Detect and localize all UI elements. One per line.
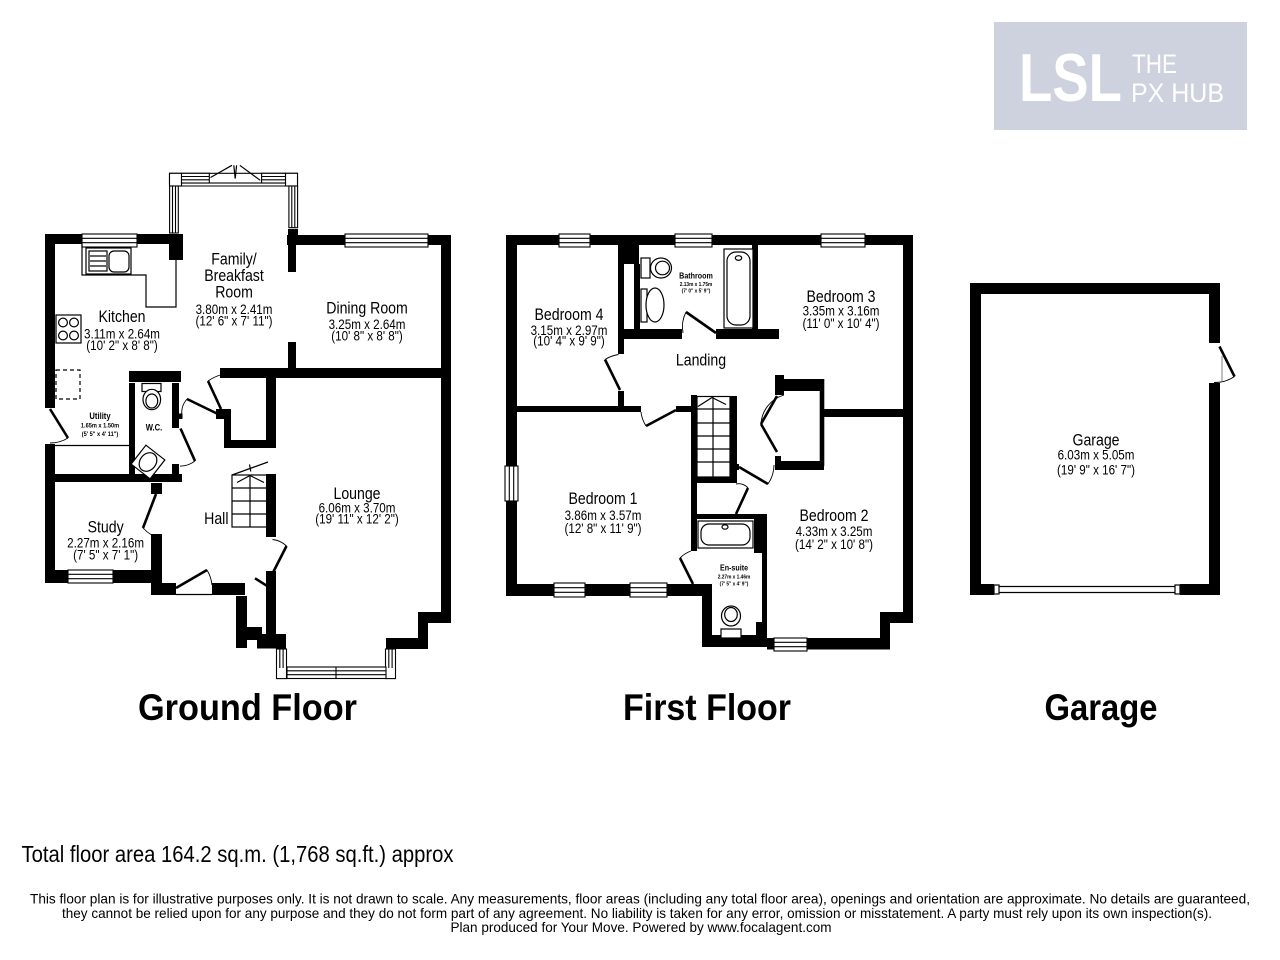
svg-text:Ground Floor: Ground Floor: [138, 687, 357, 728]
svg-text:Bathroom: Bathroom: [679, 271, 713, 281]
svg-text:(12' 8" x 11' 9"): (12' 8" x 11' 9"): [564, 520, 641, 536]
svg-text:(14' 2" x 10' 8"): (14' 2" x 10' 8"): [795, 536, 873, 552]
svg-text:(11' 0" x 10' 4"): (11' 0" x 10' 4"): [802, 315, 879, 331]
svg-text:(7' 5" x 7' 1"): (7' 5" x 7' 1"): [73, 546, 138, 562]
svg-text:Kitchen: Kitchen: [98, 308, 145, 326]
svg-text:(10' 4" x 9' 9"): (10' 4" x 9' 9"): [533, 333, 604, 349]
svg-text:Bedroom 1: Bedroom 1: [569, 490, 638, 508]
svg-text:(19' 11" x 12' 2"): (19' 11" x 12' 2"): [315, 510, 398, 526]
svg-text:(10' 2" x 8' 8"): (10' 2" x 8' 8"): [86, 337, 157, 353]
svg-text:(12' 6" x 7' 11"): (12' 6" x 7' 11"): [195, 312, 272, 328]
svg-text:Hall: Hall: [204, 510, 228, 528]
svg-text:THE: THE: [1132, 49, 1177, 79]
svg-text:2.27m x 1.46m: 2.27m x 1.46m: [718, 574, 751, 581]
svg-text:6.03m x 5.05m: 6.03m x 5.05m: [1058, 446, 1135, 462]
svg-text:(10' 8" x 8' 8"): (10' 8" x 8' 8"): [331, 327, 402, 343]
svg-text:Plan produced for Your Move. P: Plan produced for Your Move. Powered by …: [451, 919, 832, 935]
svg-text:(19' 9" x 16' 7"): (19' 9" x 16' 7"): [1057, 461, 1135, 477]
svg-text:W.C.: W.C.: [146, 422, 163, 433]
svg-text:LSL: LSL: [1019, 40, 1122, 116]
svg-text:Utility: Utility: [89, 410, 110, 421]
svg-text:Garage: Garage: [1045, 687, 1158, 728]
svg-text:1.65m x 1.50m: 1.65m x 1.50m: [81, 422, 120, 430]
svg-text:First Floor: First Floor: [623, 687, 791, 728]
svg-text:(7' 0" x 5' 9"): (7' 0" x 5' 9"): [682, 288, 711, 295]
svg-text:Total floor area 164.2 sq.m. (: Total floor area 164.2 sq.m. (1,768 sq.f…: [22, 841, 454, 867]
svg-text:PX HUB: PX HUB: [1131, 78, 1224, 108]
svg-text:(5' 5" x 4' 11"): (5' 5" x 4' 11"): [82, 431, 119, 439]
svg-text:Dining Room: Dining Room: [326, 299, 408, 317]
svg-text:Room: Room: [215, 283, 253, 301]
svg-text:En-suite: En-suite: [720, 563, 749, 573]
svg-text:(7' 5" x 4' 9"): (7' 5" x 4' 9"): [720, 581, 749, 588]
svg-text:Landing: Landing: [676, 351, 726, 369]
